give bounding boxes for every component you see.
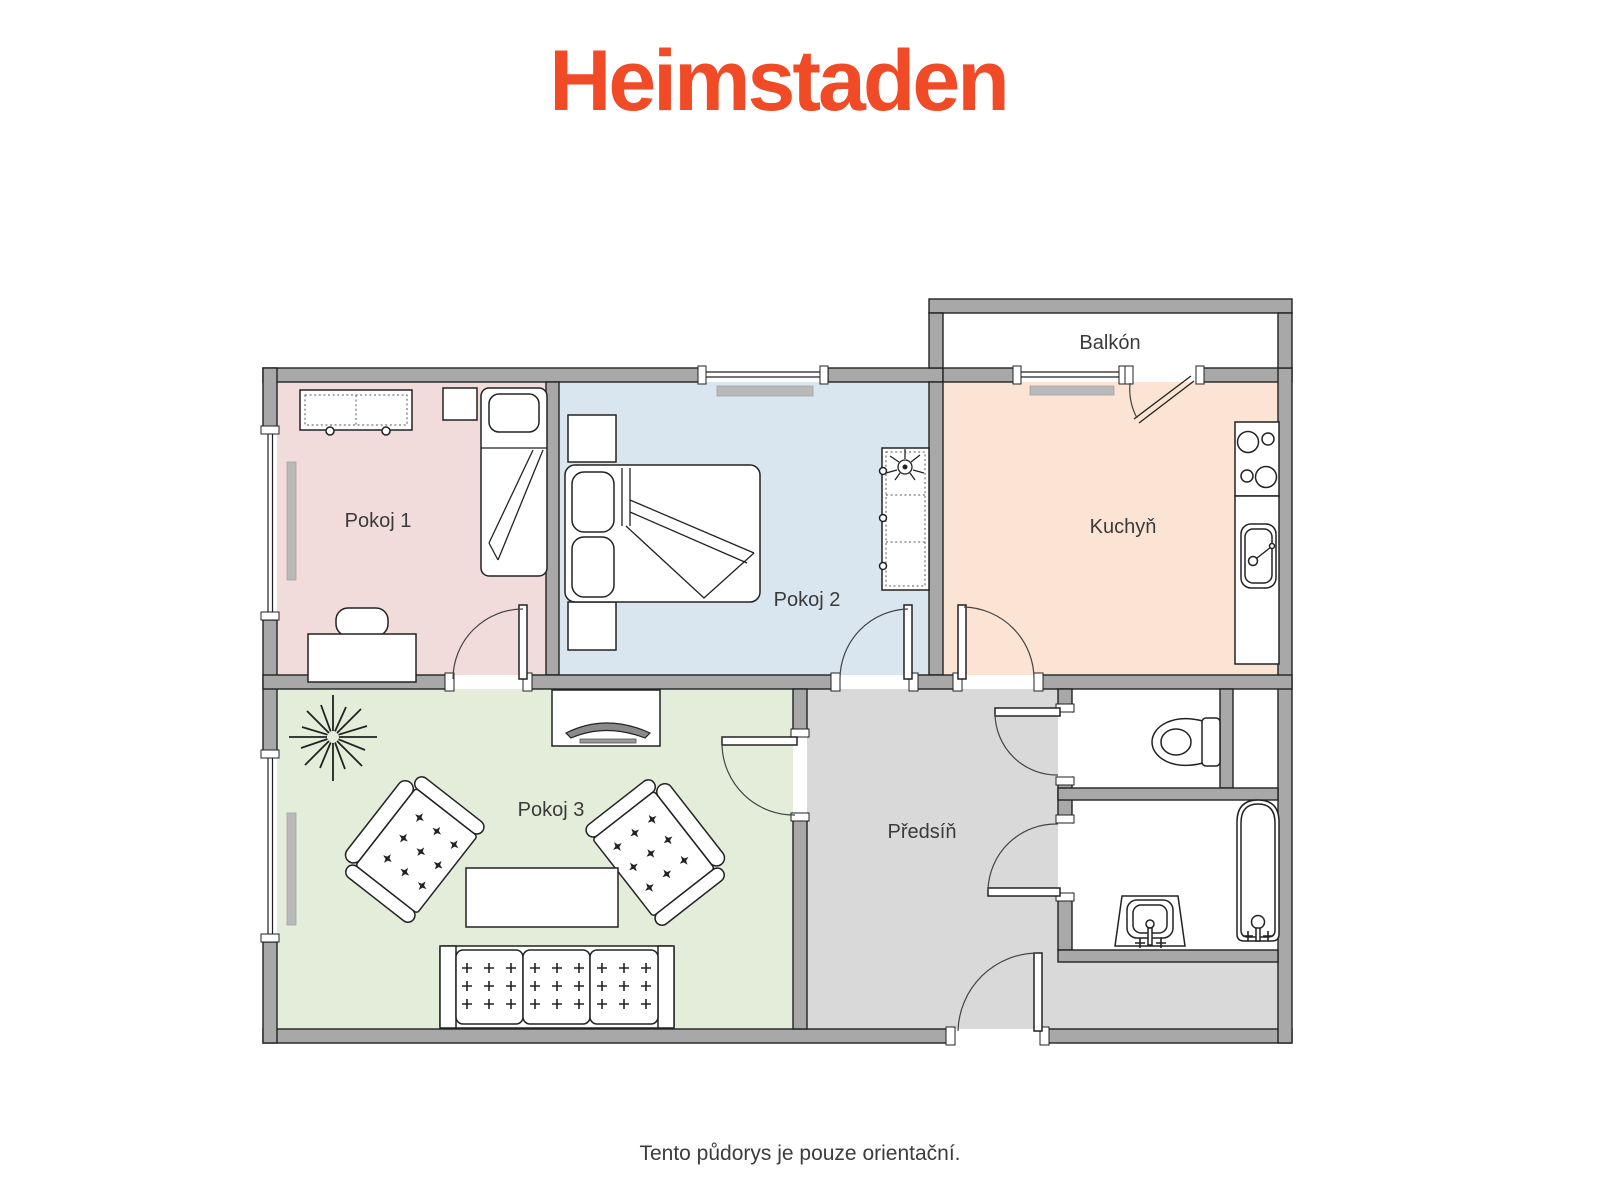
window-pokoj2-top [698,366,828,384]
desk-icon [308,634,416,682]
wall-segment [1036,675,1292,689]
wall-segment [263,368,700,382]
door-panel [958,605,966,679]
wall-segment [1058,788,1278,800]
kitchen-counter-icon [1235,496,1279,664]
tv-stand-icon [552,690,660,746]
window-pokoj1-left [261,426,279,620]
floor-plan: Pokoj 1 Pokoj 2 Pokoj 3 Kuchyň Předsíň B… [0,0,1600,1200]
door-panel [519,605,527,679]
wall-segment [525,675,838,689]
balcony-wall [1278,313,1292,368]
nightstand-icon [568,602,616,650]
room-pokoj1-label: Pokoj 1 [345,510,412,532]
bathtub-icon [1237,800,1279,941]
disclaimer-text: Tento půdorys je pouze orientační. [0,1142,1600,1166]
room-pokoj2-label: Pokoj 2 [774,589,841,611]
sofa-armrest [658,946,674,1028]
door-panel [904,605,912,679]
wall-segment [828,368,943,382]
coffee-table-icon [466,868,618,927]
room-kuchyn-label: Kuchyň [1090,516,1157,538]
room-predsin-label: Předsíň [888,821,957,843]
door-panel [722,737,797,745]
sofa-armrest [440,946,456,1028]
wall-segment [1058,950,1278,962]
dresser-icon [300,390,412,435]
stove-icon [1235,422,1279,496]
desk-chair-icon [336,608,388,636]
room-balkon-label: Balkón [1079,332,1140,354]
room-closet-floor [1233,689,1278,788]
wall-segment [1220,689,1233,788]
door-panel [988,888,1060,896]
radiator [1030,386,1114,395]
toilet-icon [1152,718,1220,766]
window-pokoj3-left [261,750,279,942]
pillow [489,394,539,432]
door-panel [1034,953,1042,1031]
door-panel [995,708,1060,716]
wall-segment [929,382,943,675]
room-pokoj3-label: Pokoj 3 [518,799,585,821]
washbasin-icon [1115,896,1185,948]
pillow [572,472,614,532]
wall-segment [263,942,277,1043]
nightstand-icon [443,388,477,420]
window-kuchyn-top [1013,366,1127,384]
balcony-wall [929,299,1292,313]
wall-segment [943,368,1015,382]
double-bed-icon [565,465,760,602]
kitchen-sink-icon [1241,524,1276,588]
wall-segment [546,382,559,675]
pillow [572,537,614,597]
wall-segment [263,1029,953,1043]
wall-segment [793,813,807,1029]
single-bed-icon [481,388,547,576]
wall-segment [1278,368,1292,1043]
radiator [717,386,813,396]
sofa-icon [440,946,674,1028]
page: Heimstaden [0,0,1600,1200]
radiator [287,462,296,580]
wall-segment [1058,893,1072,950]
radiator [287,813,296,925]
balcony-wall [929,313,943,368]
wardrobe-icon [880,448,930,590]
wall-segment [263,368,277,428]
nightstand-icon [568,415,616,462]
wall-segment [1042,1029,1292,1043]
